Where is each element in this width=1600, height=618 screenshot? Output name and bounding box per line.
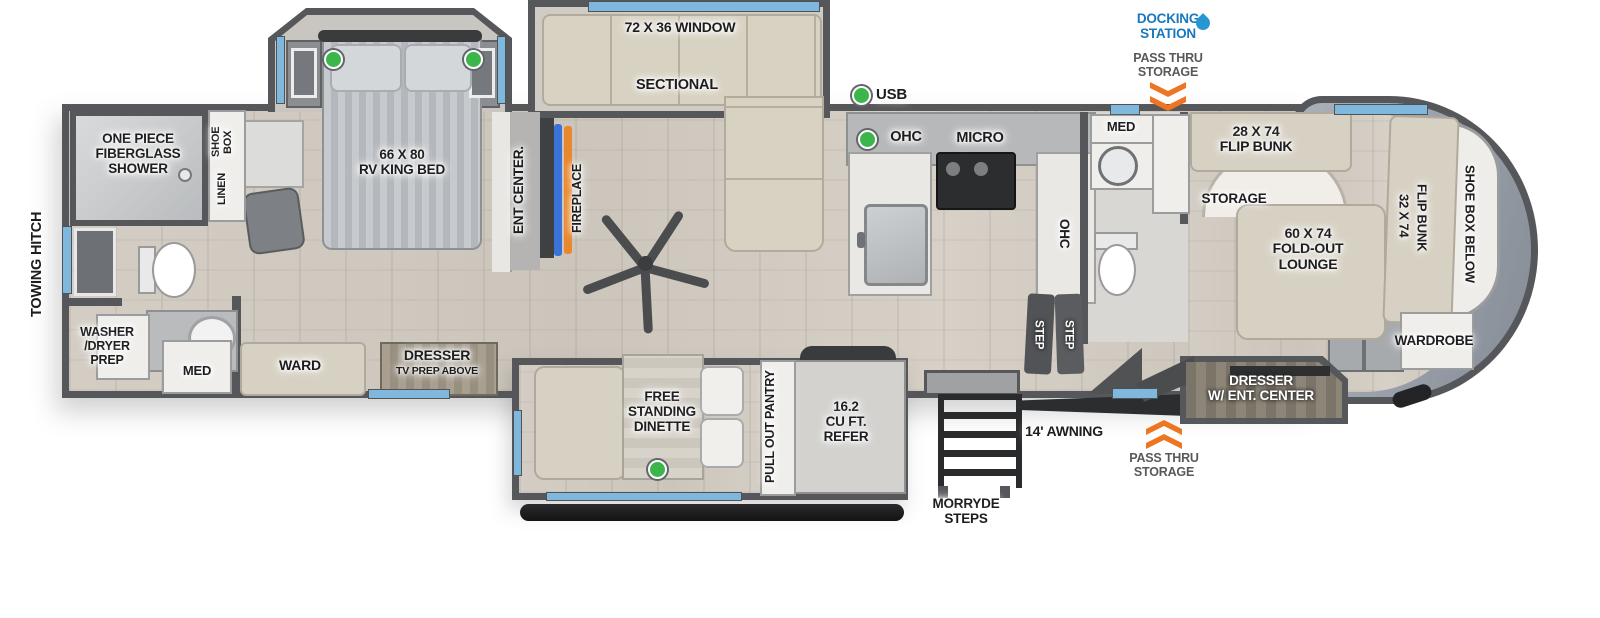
bedroom-window-left [276,36,285,104]
tv-prep-label: TV PREP ABOVE [388,366,486,378]
flip-bunk-32-label: FLIP BUNK [1414,168,1428,268]
washer-dryer-label: WASHER /DRYER PREP [70,326,144,367]
stove-burner [974,162,988,176]
med-label-front: MED [170,364,224,378]
mid-bath-window [1110,104,1140,115]
pass-thru-arrow-up-icon [1146,434,1182,449]
king-bed-label: 66 X 80 RV KING BED [352,148,452,178]
linen-label: LINEN [216,164,228,214]
bedroom-window-right [497,36,506,104]
storage-label: STORAGE [1194,192,1274,207]
med-label-mid: MED [1096,120,1146,134]
bedroom-usb-dot-right [464,50,483,69]
mid-bath-cabinet [1152,114,1190,214]
sectional-sofa-chaise [724,96,824,252]
usb-indicator-dot [852,86,871,105]
dinette-window-bottom [546,492,742,501]
kitchen-sink [864,204,928,286]
lounge-label: 60 X 74 FOLD-OUT LOUNGE [1246,226,1370,272]
bedroom-bottom-window [368,389,450,399]
morryde-steps-ladder [938,394,1022,488]
micro-label: MICRO [944,131,1016,147]
mid-toilet-bowl [1098,244,1136,296]
bath-window [62,226,72,294]
dinette-label: FREE STANDING DINETTE [608,390,716,435]
pass-thru-storage-bottom-label: PASS THRU STORAGE [1118,452,1210,480]
kitchen-ohc-label: OHC [882,130,930,146]
sectional-label: SECTIONAL [610,78,744,94]
dresser-label: DRESSER [394,348,480,363]
nightstand-left-window [291,48,317,98]
flip-bunk-32-size-label: 32 X 74 [1396,176,1410,256]
pass-thru-storage-top-label: PASS THRU STORAGE [1124,52,1212,80]
entry-side-window [1112,388,1158,399]
toilet-bowl [152,242,196,298]
kitchen-ohc-dot [858,130,877,149]
pantry-label: PULL OUT PANTRY [764,370,778,484]
ceiling-fan-hub [638,256,653,271]
pass-thru-arrow-up-icon [1146,420,1182,435]
step-label-1: STEP [1032,306,1045,364]
pillow-left [330,44,402,92]
kitchen-ohc-side-label: OHC [1056,208,1071,260]
ent-center-label: ENT CENTER. [512,128,527,252]
rv-floorplan-diagram: TOWING HITCH DOCKING STATION PASS THRU S… [0,0,1600,618]
stove-burner [946,162,960,176]
usb-label: USB [876,87,922,104]
pillow-right [404,44,472,92]
shoe-box-below-label: SHOE BOX BELOW [1462,154,1476,294]
ent-center-cabinet-back [492,112,512,272]
awning-roller [520,504,904,521]
refer-label: 16.2 CU FT. REFER [804,400,888,445]
morryde-steps-label: MORRYDE STEPS [920,497,1012,527]
bedroom-vanity [244,120,304,188]
awning-label: 14' AWNING [1014,424,1114,439]
step-label-2: STEP [1062,306,1075,364]
dresser-ent-center-label: DRESSER W/ ENT. CENTER [1194,374,1328,404]
bath-partition-wall [62,298,122,306]
window-size-label: 72 X 36 WINDOW [608,20,752,35]
king-bed-headboard [318,30,482,42]
dinette-window-left [513,410,522,476]
shower-label: ONE PIECE FIBERGLASS SHOWER [86,132,190,177]
towing-hitch-label: TOWING HITCH [30,190,46,338]
mid-bath-sink [1098,146,1138,186]
flip-bunk-28-label: 28 X 74 FLIP BUNK [1204,124,1308,155]
tv-strip [554,124,562,256]
bunk-top-window [1334,104,1428,115]
entry-threshold [924,370,1020,396]
fireplace-label: FIREPLACE [571,148,585,248]
bath-wall-window [74,228,116,296]
ent-center-tv-wall [540,118,554,258]
dinette-usb-dot [648,460,667,479]
pass-thru-arrow-down-icon [1150,82,1186,97]
ward-label: WARD [260,358,340,373]
sectional-window [588,1,820,12]
sink-faucet-icon [857,232,865,248]
shoe-box-label: SHOE BOX [210,116,234,168]
wardrobe-label: WARDROBE [1386,334,1482,349]
stove [936,152,1016,210]
bedroom-usb-dot-left [324,50,343,69]
bedroom-chair [242,186,306,255]
